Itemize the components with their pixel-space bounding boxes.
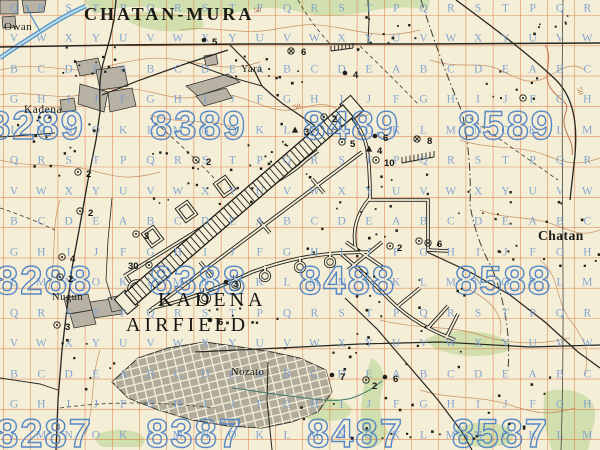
building-dot — [297, 70, 299, 72]
grid-letter: J — [94, 247, 99, 259]
building-dot — [406, 433, 408, 435]
grid-letter: Q — [146, 155, 155, 167]
building-dot — [395, 229, 398, 232]
grid-letter: W — [172, 338, 183, 350]
grid-letter: P — [393, 3, 399, 15]
grid-letter: G — [146, 247, 154, 259]
grid-letter: W — [445, 33, 456, 45]
building-dot — [380, 315, 382, 317]
building-dot — [37, 120, 39, 122]
grid-letter: Y — [365, 338, 374, 350]
grid-letter: G — [556, 94, 564, 106]
grid-letter: O — [92, 277, 100, 289]
grid-letter: V — [556, 186, 565, 198]
grid-letter: B — [10, 64, 18, 76]
building-dot — [33, 165, 35, 167]
building-dot — [497, 213, 499, 215]
grid-letter: B — [556, 369, 564, 381]
grid-letter: V — [556, 338, 565, 350]
building-dot — [85, 388, 88, 391]
place-label-yara: Yara — [241, 64, 262, 75]
grid-letter: Q — [556, 3, 565, 15]
grid-letter: L — [556, 125, 563, 137]
grid-letter: S — [65, 155, 71, 167]
grid-letter: W — [36, 33, 47, 45]
grid-letter: F — [120, 94, 126, 106]
grid-letter: I — [476, 399, 480, 411]
place-label-nozato: Nozato — [231, 367, 264, 378]
grid-letter: U — [392, 338, 401, 350]
place-label-chatan-mura: CHATAN-MURA — [84, 4, 254, 24]
grid-letter: E — [92, 216, 99, 228]
target-number: 6 — [393, 374, 398, 385]
building-dot — [34, 135, 37, 138]
building-dot — [249, 165, 251, 167]
place-label-chatan: Chatan — [538, 228, 584, 243]
grid-letter: R — [37, 308, 45, 320]
grid-letter: U — [256, 33, 265, 45]
building-dot — [365, 273, 367, 275]
grid-letter: X — [64, 338, 73, 350]
building-dot — [581, 219, 584, 222]
building-dot — [265, 155, 267, 157]
grid-letter: P — [529, 155, 535, 167]
grid-letter: H — [447, 247, 455, 259]
grid-letter: E — [502, 64, 509, 76]
grid-letter: W — [309, 338, 320, 350]
grid-letter: L — [420, 277, 427, 289]
grid-letter: J — [230, 399, 235, 411]
grid-letter: S — [475, 308, 481, 320]
grid-letter: E — [365, 64, 372, 76]
grid-letter: E — [365, 216, 372, 228]
building-dot — [375, 233, 377, 235]
grid-letter: M — [582, 125, 592, 137]
grid-letter: C — [447, 64, 455, 76]
grid-letter: Y — [228, 33, 237, 45]
building-dot — [411, 404, 414, 407]
building-dot — [508, 423, 510, 425]
building-dot — [408, 24, 410, 26]
building-dot — [494, 218, 496, 220]
grid-letter: I — [340, 399, 344, 411]
grid-letter: W — [309, 33, 320, 45]
grid-letter: X — [64, 186, 73, 198]
grid-number-8287: 8287 — [0, 412, 93, 450]
building-dot — [339, 201, 341, 203]
grid-letter: Y — [92, 338, 101, 350]
building-dot — [360, 211, 362, 213]
building-dot — [48, 116, 50, 118]
building-dot — [90, 377, 92, 379]
target-number: 8 — [427, 136, 432, 147]
target-number: 6 — [437, 239, 442, 250]
building-dot — [536, 77, 538, 79]
grid-letter: C — [37, 64, 45, 76]
grid-letter: P — [393, 308, 399, 320]
grid-letter: S — [475, 3, 481, 15]
grid-letter: B — [10, 216, 18, 228]
grid-letter: F — [256, 94, 262, 106]
grid-letter: Q — [283, 3, 292, 15]
building-dot — [383, 33, 385, 35]
building-dot — [196, 184, 198, 186]
grid-letter: K — [256, 125, 265, 137]
topographic-map: QRSTPQRSTPQRSTPQRSTPQRVWXYUVWXYUVWXYUVWX… — [0, 0, 600, 450]
target-number: 5 — [212, 37, 218, 48]
grid-letter: H — [447, 94, 455, 106]
grid-letter: R — [583, 155, 591, 167]
building-dot — [424, 326, 426, 328]
grid-letter: H — [447, 399, 455, 411]
grid-letter: B — [283, 369, 291, 381]
grid-letter: K — [119, 430, 128, 442]
grid-letter: B — [147, 64, 155, 76]
building-dot — [463, 294, 465, 296]
target-number: 30 — [128, 261, 139, 272]
target-number: 4 — [70, 254, 76, 265]
building-dot — [256, 322, 258, 324]
building-dot — [512, 258, 514, 260]
grid-letter: C — [583, 64, 591, 76]
building-dot — [516, 89, 518, 91]
building-dot — [332, 352, 334, 354]
grid-number-8487: 8487 — [307, 412, 404, 450]
building-dot — [250, 201, 252, 203]
target-number: 3 — [65, 322, 70, 333]
building-dot — [368, 18, 370, 20]
grid-letter: T — [502, 308, 509, 320]
grid-letter: Q — [419, 155, 428, 167]
grid-letter: W — [36, 338, 47, 350]
grid-letter: T — [92, 308, 99, 320]
building-dot — [70, 147, 72, 149]
airfield-label-line2: AIRFIELD — [126, 314, 249, 336]
grid-letter: V — [419, 338, 428, 350]
grid-letter: T — [92, 155, 99, 167]
building-dot — [426, 174, 428, 176]
grid-letter: D — [201, 64, 209, 76]
building-dot — [38, 116, 41, 119]
building-dot — [321, 228, 323, 230]
building-dot — [306, 173, 308, 175]
grid-letter: V — [283, 338, 292, 350]
grid-letter: G — [419, 399, 427, 411]
building-dot — [268, 75, 270, 77]
grid-letter: V — [146, 186, 155, 198]
grid-letter: R — [310, 155, 318, 167]
building-dot — [421, 330, 423, 332]
grid-letter: R — [447, 155, 455, 167]
grid-letter: E — [229, 216, 236, 228]
building-dot — [300, 406, 303, 409]
grid-letter: C — [310, 216, 318, 228]
building-dot — [378, 301, 380, 303]
building-dot — [385, 397, 387, 399]
grid-letter: Q — [419, 3, 428, 15]
grid-letter: L — [420, 430, 427, 442]
building-dot — [17, 124, 19, 126]
building-dot — [509, 191, 511, 193]
building-dot — [544, 393, 546, 395]
grid-letter: I — [340, 247, 344, 259]
building-dot — [270, 161, 272, 163]
building-dot — [549, 376, 551, 378]
building-dot — [367, 336, 370, 339]
grid-letter: G — [283, 247, 291, 259]
grid-letter: J — [94, 94, 99, 106]
grid-letter: U — [256, 186, 265, 198]
grid-letter: O — [92, 430, 100, 442]
place-label-nugun: Nugun — [52, 292, 83, 303]
grid-letter: P — [120, 155, 126, 167]
grid-letter: A — [529, 216, 538, 228]
grid-letter: Y — [501, 33, 510, 45]
building-dot — [558, 201, 561, 204]
building-dot — [349, 356, 352, 359]
grid-letter: J — [94, 399, 99, 411]
grid-letter: X — [337, 186, 346, 198]
grid-letter: J — [503, 399, 508, 411]
grid-letter: B — [556, 64, 564, 76]
building-dot — [366, 309, 369, 312]
building-dot — [207, 187, 209, 189]
building-dot — [390, 433, 392, 435]
building-dot — [384, 236, 386, 238]
map-sheet: QRSTPQRSTPQRSTPQRSTPQRVWXYUVWXYUVWXYUVWX… — [0, 0, 600, 450]
building-dot — [565, 23, 567, 25]
grid-letter: D — [474, 64, 482, 76]
building-dot — [368, 186, 370, 188]
building-dot — [533, 98, 535, 100]
building-dot — [431, 430, 434, 433]
grid-letter: B — [147, 216, 155, 228]
building-dot — [66, 339, 69, 342]
building-dot — [414, 37, 416, 39]
building-dot — [284, 144, 286, 146]
grid-letter: A — [529, 369, 538, 381]
grid-letter: J — [230, 247, 235, 259]
building-dot — [167, 199, 169, 201]
building-dot — [75, 75, 77, 77]
grid-letter: F — [256, 399, 262, 411]
grid-letter: C — [37, 216, 45, 228]
building-dot — [366, 343, 368, 345]
building-dot — [122, 69, 124, 71]
building-dot — [91, 72, 93, 74]
building-dot — [392, 37, 395, 40]
grid-letter: R — [583, 3, 591, 15]
grid-letter: G — [283, 399, 291, 411]
grid-letter: U — [119, 338, 128, 350]
grid-letter: R — [583, 308, 591, 320]
building-dot — [235, 59, 237, 61]
grid-letter: D — [64, 64, 72, 76]
grid-letter: J — [503, 247, 508, 259]
building-dot — [595, 260, 597, 262]
target-number: 4 — [377, 146, 383, 157]
grid-letter: V — [283, 186, 292, 198]
building-dot — [251, 187, 253, 189]
grid-letter: L — [283, 430, 290, 442]
building-dot — [373, 276, 375, 278]
building-dot — [108, 66, 110, 68]
building-dot — [546, 221, 548, 223]
building-dot — [159, 151, 161, 153]
grid-letter: D — [201, 216, 209, 228]
grid-letter: I — [203, 247, 207, 259]
place-label-kadena: Kadena — [24, 104, 62, 116]
grid-letter: R — [37, 3, 45, 15]
grid-letter: H — [37, 399, 45, 411]
grid-letter: B — [556, 216, 564, 228]
building-dot — [461, 288, 463, 290]
building-dot — [219, 203, 221, 205]
grid-letter: X — [474, 33, 483, 45]
grid-number-8389: 8389 — [150, 104, 247, 148]
grid-letter: M — [446, 125, 456, 137]
grid-letter: W — [172, 186, 183, 198]
grid-letter: K — [256, 430, 265, 442]
building-dot — [235, 76, 237, 78]
grid-letter: X — [201, 338, 210, 350]
building-dot — [543, 258, 545, 260]
grid-letter: S — [475, 155, 481, 167]
grid-letter: I — [476, 247, 480, 259]
building-dot — [538, 26, 540, 28]
target-number: 2 — [397, 243, 402, 254]
target-number: 5 — [350, 139, 356, 150]
building-dot — [405, 363, 407, 365]
grid-letter: T — [365, 155, 372, 167]
grid-letter: V — [146, 338, 155, 350]
grid-letter: B — [420, 216, 428, 228]
grid-letter: C — [583, 216, 591, 228]
building-dot — [79, 64, 81, 66]
building-dot — [369, 42, 371, 44]
grid-letter: H — [583, 399, 591, 411]
grid-letter: C — [447, 216, 455, 228]
grid-letter: A — [119, 369, 128, 381]
building-dot — [473, 437, 475, 439]
building-dot — [365, 427, 367, 429]
building-dot — [567, 15, 569, 17]
grid-letter: A — [529, 64, 538, 76]
grid-letter: G — [10, 399, 18, 411]
building-dot — [95, 62, 97, 64]
grid-letter: Q — [10, 308, 19, 320]
grid-letter: E — [502, 216, 509, 228]
building-dot — [66, 46, 68, 48]
place-label-owan: Owan — [4, 21, 32, 33]
building-dot — [351, 437, 354, 440]
grid-letter: Y — [501, 338, 510, 350]
grid-letter: R — [447, 308, 455, 320]
grid-letter: Y — [92, 186, 101, 198]
building-dot — [397, 25, 399, 27]
grid-letter: C — [174, 64, 182, 76]
grid-letter: V — [283, 33, 292, 45]
grid-number-8589: 8589 — [458, 104, 555, 148]
building-dot — [391, 179, 393, 181]
grid-letter: R — [447, 3, 455, 15]
grid-letter: W — [582, 33, 593, 45]
building-dot — [313, 251, 315, 253]
grid-letter: W — [582, 338, 593, 350]
building-dot — [109, 367, 111, 369]
grid-letter: U — [529, 338, 538, 350]
building-dot — [533, 33, 536, 36]
grid-letter: D — [474, 369, 482, 381]
grid-letter: H — [174, 247, 182, 259]
building-dot — [268, 163, 271, 166]
building-dot — [559, 265, 561, 267]
grid-letter: F — [393, 399, 399, 411]
grid-letter: V — [419, 33, 428, 45]
building-dot — [74, 60, 76, 62]
building-dot — [357, 48, 360, 51]
target-number: 3 — [144, 231, 149, 242]
grid-letter: M — [582, 430, 592, 442]
target-number: 2 — [88, 208, 93, 219]
building-dot — [74, 150, 76, 152]
grid-letter: E — [229, 64, 236, 76]
building-dot — [486, 83, 488, 85]
grid-letter: K — [119, 277, 128, 289]
building-dot — [333, 403, 335, 405]
grid-letter: O — [92, 125, 100, 137]
building-dot — [560, 203, 562, 205]
grid-letter: U — [119, 33, 128, 45]
grid-letter: B — [420, 369, 428, 381]
building-dot — [399, 409, 402, 412]
target-number: 2 — [86, 169, 91, 180]
building-dot — [427, 193, 429, 195]
building-dot — [357, 249, 360, 252]
target-number: 7 — [340, 372, 345, 383]
grid-letter: Y — [228, 186, 237, 198]
grid-number-8587: 8587 — [452, 412, 549, 450]
grid-letter: R — [310, 308, 318, 320]
grid-letter: Q — [556, 155, 565, 167]
building-dot — [62, 72, 64, 74]
building-dot — [510, 201, 512, 203]
grid-letter: G — [146, 399, 154, 411]
grid-letter: V — [10, 186, 19, 198]
building-dot — [531, 82, 533, 84]
building-dot — [309, 176, 312, 179]
target-number: 2 — [68, 274, 73, 285]
building-dot — [460, 351, 462, 353]
building-dot — [280, 123, 282, 125]
grid-letter: R — [310, 3, 318, 15]
target-number: 2 — [332, 114, 337, 125]
grid-letter: A — [392, 216, 401, 228]
building-dot — [62, 342, 64, 344]
building-dot — [336, 208, 338, 210]
grid-letter: G — [556, 247, 564, 259]
building-dot — [33, 140, 35, 142]
grid-letter: V — [146, 33, 155, 45]
building-dot — [458, 366, 460, 368]
building-dot — [266, 58, 268, 60]
building-dot — [357, 333, 359, 335]
grid-letter: E — [502, 369, 509, 381]
building-dot — [45, 136, 47, 138]
building-dot — [356, 295, 359, 298]
building-dot — [555, 26, 557, 28]
target-number: 10 — [384, 158, 395, 169]
